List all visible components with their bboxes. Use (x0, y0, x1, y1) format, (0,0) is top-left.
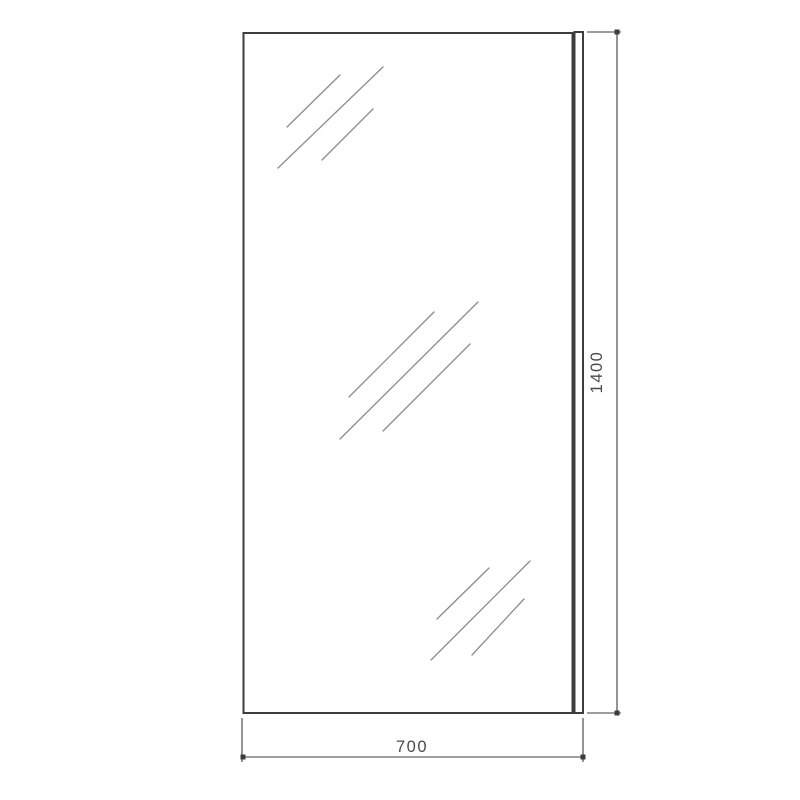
dimension-arrow-left (241, 755, 246, 760)
height-dimension-label: 1400 (588, 351, 606, 394)
width-dimension-label: 700 (396, 738, 428, 756)
glass-hatch-line (322, 109, 373, 160)
glass-hatch-line (437, 568, 489, 619)
glass-hatch-line (278, 67, 383, 168)
glass-hatch-group-bottom (431, 561, 530, 660)
height-dimension: 1400 (587, 30, 621, 716)
glass-hatch-line (383, 344, 470, 431)
glass-hatch-group-top (278, 67, 383, 168)
dimension-arrow-bottom (615, 711, 620, 716)
glass-hatch-line (349, 312, 434, 397)
glass-panel-outline (244, 33, 573, 713)
technical-drawing-canvas: 1400 700 (0, 0, 800, 800)
glass-panel-drawing: 1400 700 (0, 0, 800, 800)
glass-hatch-line (340, 302, 478, 439)
wall-profile-strip (575, 32, 584, 713)
width-dimension: 700 (241, 718, 586, 762)
glass-hatch-group-middle (340, 302, 478, 439)
dimension-arrow-top (615, 30, 620, 35)
glass-hatch-line (287, 75, 340, 127)
glass-hatch-line (472, 599, 524, 655)
dimension-arrow-right (581, 755, 586, 760)
